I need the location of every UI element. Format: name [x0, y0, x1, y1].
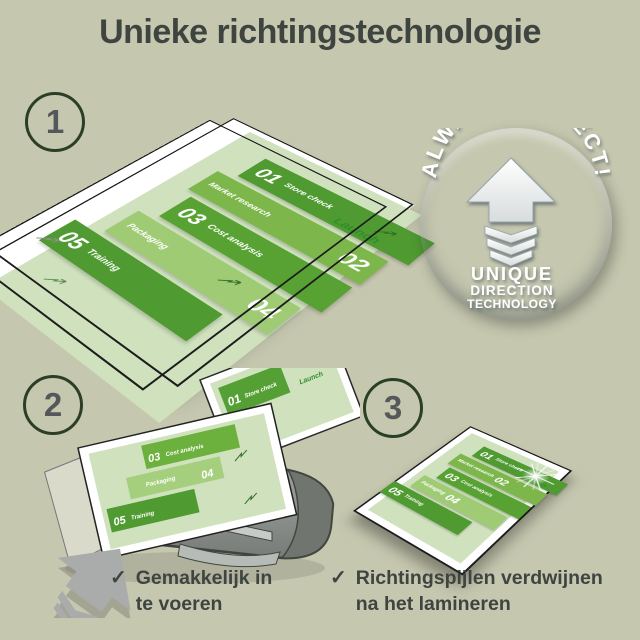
checklist-line: na het lamineren: [356, 593, 511, 615]
laminated-panel: 01 Store check Market research 02 03 Cos…: [368, 433, 559, 563]
checklist-line: te voeren: [136, 593, 223, 615]
laminated-document: 01 Store check Market research 02 03 Cos…: [353, 426, 572, 575]
step-3-number: 3: [384, 389, 402, 427]
step-3-circle: 3: [363, 378, 423, 438]
checkmark-icon: ✓: [110, 565, 127, 617]
bar-label: Training: [402, 494, 424, 507]
always-perfect-badge: ALWAYS PERFECT! UNIQUE DIRECTION TECHNOL…: [420, 128, 612, 320]
checklist-item-arrows-disappear: ✓ Richtingspijlen verdwijnen na het lami…: [330, 565, 603, 617]
step-1-scene: 01 Store check Market research 02 03 Cos…: [0, 110, 452, 411]
bar-label: Packaging: [419, 481, 446, 496]
bar-number: 04: [442, 492, 463, 506]
checklist-text: Richtingspijlen verdwijnen na het lamine…: [356, 565, 603, 617]
checklist-line: Richtingspijlen verdwijnen: [356, 567, 603, 589]
checklist-line: Gemakkelijk in: [136, 567, 273, 589]
checklist-text: Gemakkelijk in te voeren: [136, 565, 273, 617]
page-title: Unieke richtingstechnologie: [0, 13, 640, 52]
badge-line2: DIRECTION: [470, 283, 553, 298]
badge-line1: UNIQUE: [471, 264, 553, 284]
up-arrow-icon: [467, 158, 555, 266]
badge-line3: TECHNOLOGY: [467, 297, 557, 311]
checkmark-icon: ✓: [330, 565, 347, 617]
checklist-item-easy-feed: ✓ Gemakkelijk in te voeren: [110, 565, 272, 617]
product-diagram: Unieke richtingstechnologie 1 2 3 01 Sto…: [0, 0, 640, 640]
step-1-circle: 1: [25, 92, 85, 152]
step-1-number: 1: [46, 103, 64, 141]
